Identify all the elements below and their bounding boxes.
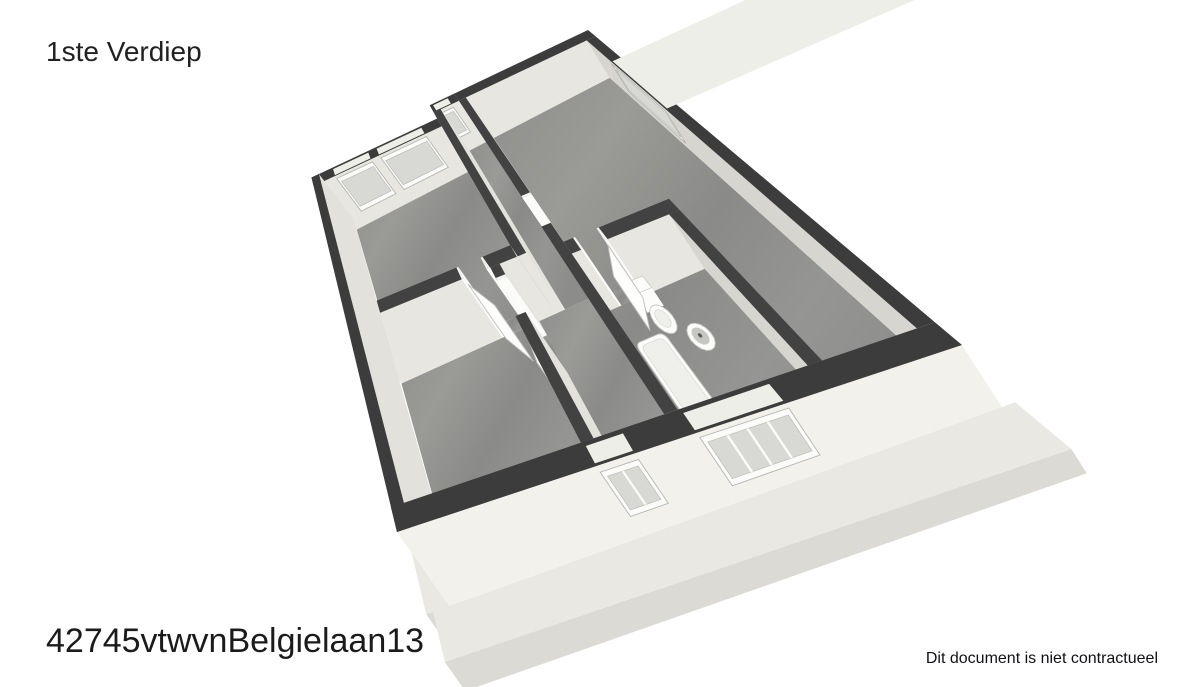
page-title: 1ste Verdiep xyxy=(46,36,202,68)
floorplan-page: 1ste Verdiep 42745vtwvnBelgielaan13 Dit … xyxy=(0,0,1200,687)
window-top xyxy=(613,0,948,108)
reference-code: 42745vtwvnBelgielaan13 xyxy=(46,622,424,661)
floorplan-3d-render xyxy=(0,0,1200,687)
disclaimer-text: Dit document is niet contractueel xyxy=(926,650,1158,668)
